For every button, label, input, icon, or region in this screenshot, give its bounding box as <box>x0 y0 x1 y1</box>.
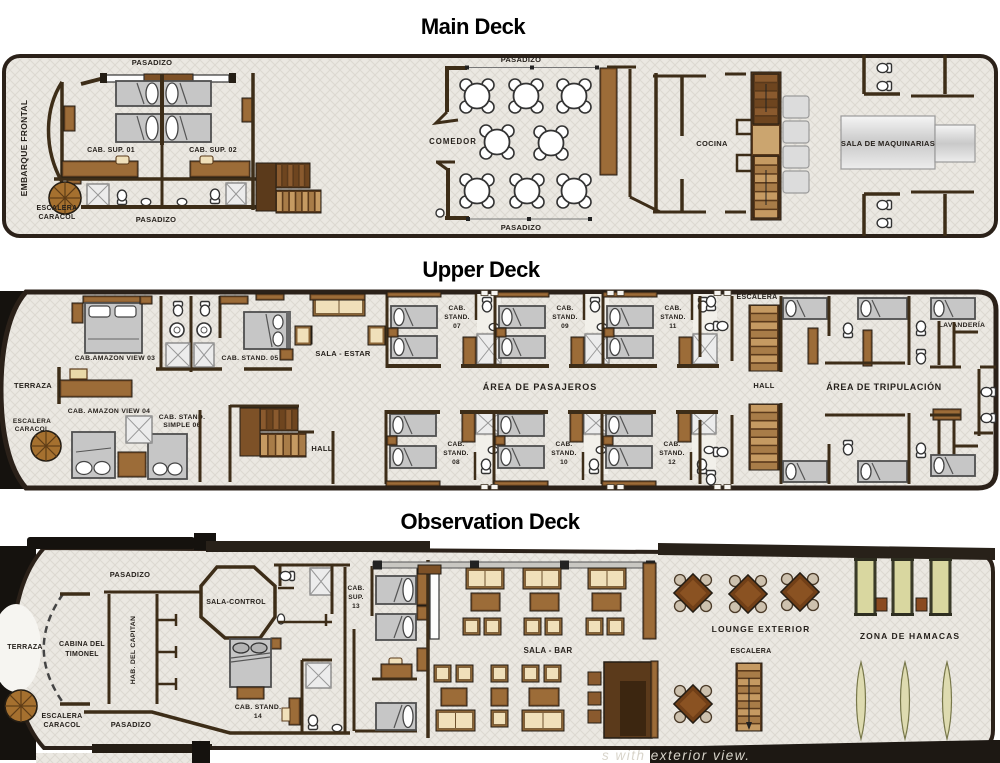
svg-text:CAB. STAND. 05: CAB. STAND. 05 <box>222 355 279 362</box>
svg-text:07: 07 <box>453 323 461 330</box>
svg-text:STAND.: STAND. <box>444 314 470 321</box>
svg-text:11: 11 <box>669 323 677 330</box>
svg-text:EMBARQUE FRONTAL: EMBARQUE FRONTAL <box>19 100 29 197</box>
svg-text:CARACOL: CARACOL <box>43 722 81 729</box>
svg-text:CAB.: CAB. <box>347 585 364 592</box>
svg-text:12: 12 <box>668 459 676 466</box>
svg-text:HALL: HALL <box>753 381 774 390</box>
svg-text:14: 14 <box>254 713 262 720</box>
svg-text:ÁREA DE PASAJEROS: ÁREA DE PASAJEROS <box>483 382 598 392</box>
svg-text:LAVANDERÍA: LAVANDERÍA <box>939 320 986 329</box>
svg-text:COMEDOR: COMEDOR <box>429 137 477 146</box>
svg-text:ESCALERA: ESCALERA <box>37 205 78 212</box>
svg-text:PASADIZO: PASADIZO <box>136 215 177 224</box>
svg-text:PASADIZO: PASADIZO <box>111 720 152 729</box>
svg-text:SUP.: SUP. <box>348 594 364 601</box>
svg-text:08: 08 <box>452 459 460 466</box>
svg-text:HALL: HALL <box>311 444 332 453</box>
svg-text:CAB. SUP. 02: CAB. SUP. 02 <box>189 147 237 154</box>
svg-text:s with exterior view.: s with exterior view. <box>602 748 751 763</box>
svg-text:ESCALERA: ESCALERA <box>42 713 83 720</box>
svg-text:COCINA: COCINA <box>696 139 728 148</box>
svg-text:STAND.: STAND. <box>659 450 685 457</box>
svg-text:CAB. STAND.: CAB. STAND. <box>159 414 206 421</box>
svg-text:STAND.: STAND. <box>551 450 577 457</box>
svg-text:CAB.: CAB. <box>448 305 465 312</box>
svg-text:CABINA DEL: CABINA DEL <box>59 641 105 648</box>
svg-text:HAB. DEL CAPITAN: HAB. DEL CAPITAN <box>130 616 137 684</box>
svg-text:Observation Deck: Observation Deck <box>400 509 580 534</box>
svg-text:SALA-CONTROL: SALA-CONTROL <box>206 599 266 606</box>
svg-text:PASADIZO: PASADIZO <box>110 570 151 579</box>
svg-text:STAND.: STAND. <box>552 314 578 321</box>
svg-text:TIMONEL: TIMONEL <box>65 651 99 658</box>
svg-text:ZONA DE HAMACAS: ZONA DE HAMACAS <box>860 631 960 641</box>
svg-text:PASADIZO: PASADIZO <box>501 55 542 64</box>
svg-text:10: 10 <box>560 459 568 466</box>
svg-text:Upper Deck: Upper Deck <box>422 257 541 282</box>
svg-text:STAND.: STAND. <box>443 450 469 457</box>
svg-text:CAB.AMAZON VIEW 03: CAB.AMAZON VIEW 03 <box>75 355 156 362</box>
svg-text:CAB.: CAB. <box>664 305 681 312</box>
svg-text:PASADIZO: PASADIZO <box>132 58 173 67</box>
svg-text:SALA DE MAQUINARIAS: SALA DE MAQUINARIAS <box>841 139 935 148</box>
svg-text:SALA - ESTAR: SALA - ESTAR <box>315 349 371 358</box>
svg-text:CARACOL: CARACOL <box>38 214 76 221</box>
svg-text:ESCALERA: ESCALERA <box>13 418 51 425</box>
svg-text:LOUNGE EXTERIOR: LOUNGE EXTERIOR <box>712 624 811 634</box>
svg-text:09: 09 <box>561 323 569 330</box>
svg-text:CAB. SUP. 01: CAB. SUP. 01 <box>87 147 135 154</box>
svg-text:PASADIZO: PASADIZO <box>501 223 542 232</box>
svg-text:ÁREA DE TRIPULACIÓN: ÁREA DE TRIPULACIÓN <box>826 381 942 392</box>
svg-text:SALA - BAR: SALA - BAR <box>524 646 573 655</box>
svg-text:CAB. STAND.: CAB. STAND. <box>235 704 282 711</box>
svg-text:TERRAZA: TERRAZA <box>14 381 52 390</box>
svg-text:Main Deck: Main Deck <box>421 14 527 39</box>
svg-text:CAB.: CAB. <box>556 305 573 312</box>
svg-text:TERRAZA: TERRAZA <box>7 644 43 651</box>
svg-text:ESCALERA: ESCALERA <box>737 294 778 301</box>
svg-text:13: 13 <box>352 603 360 610</box>
svg-text:STAND.: STAND. <box>660 314 686 321</box>
svg-text:CAB. AMAZON VIEW 04: CAB. AMAZON VIEW 04 <box>68 408 150 415</box>
svg-text:SIMPLE 06: SIMPLE 06 <box>163 422 200 429</box>
svg-text:ESCALERA: ESCALERA <box>731 648 772 655</box>
